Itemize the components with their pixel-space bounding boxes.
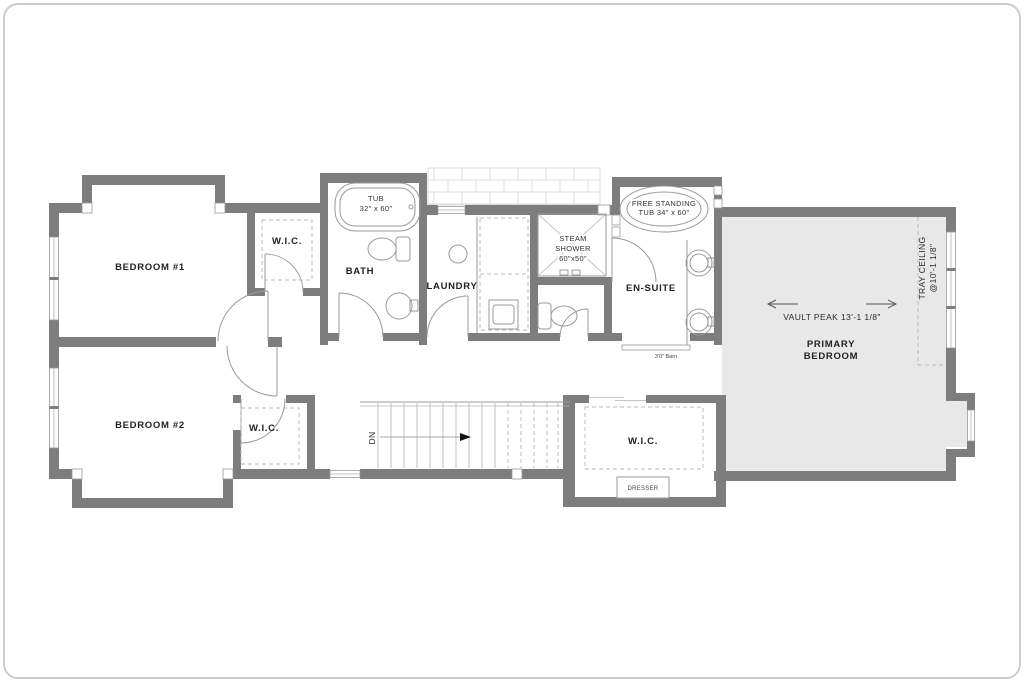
laundry-sink (489, 300, 518, 329)
window (438, 207, 465, 214)
window (72, 469, 82, 479)
label-fs-tub-line1: FREE STANDING (632, 199, 696, 208)
svg-text:DN: DN (367, 431, 377, 444)
window (947, 232, 956, 348)
label-tray-ceiling: TRAY CEILING @10'-1 1/8" (917, 236, 938, 299)
room-label-bath: BATH (346, 266, 374, 277)
room-label-wic-3: W.I.C. (628, 436, 658, 447)
window (50, 237, 59, 320)
toilet (368, 237, 410, 261)
room-label-bedroom-1: BEDROOM #1 (115, 262, 185, 273)
label-tray-line2: @10'-1 1/8" (928, 244, 938, 293)
window (512, 469, 522, 479)
stairs (360, 402, 570, 468)
window (612, 227, 620, 237)
sink (386, 293, 418, 319)
laundry-drain (449, 245, 467, 263)
label-tub-line2: 32" x 60" (360, 204, 393, 213)
label-tub-line1: TUB (368, 194, 384, 203)
floor-plan-page: BEDROOM #1 BEDROOM #2 W.I.C. W.I.C. W.I.… (0, 0, 1024, 682)
sliding-door-wic3 (589, 398, 646, 401)
stair-treads (378, 403, 558, 468)
door-laundry (427, 296, 468, 337)
barn-door (622, 345, 690, 350)
label-dresser: DRESSER (627, 486, 658, 492)
label-fs-tub-line2: TUB 34" x 60" (639, 208, 690, 217)
label-barn-door: 3'0" Barn (655, 354, 677, 360)
window (968, 410, 975, 441)
window (714, 199, 722, 208)
label-steam-line3: 60"x50" (559, 254, 587, 263)
room-label-laundry: LAUNDRY (427, 281, 478, 292)
window (612, 215, 620, 225)
toilet (538, 303, 577, 329)
window (330, 471, 360, 478)
window (223, 469, 233, 479)
laundry-counter (449, 217, 528, 333)
label-vault-peak: VAULT PEAK 13'-1 1/8" (783, 312, 881, 322)
room-label-wic-1: W.I.C. (272, 236, 302, 247)
room-label-ensuite: EN-SUITE (626, 283, 676, 294)
window (714, 186, 722, 195)
window (50, 368, 59, 448)
door-wic1 (265, 254, 303, 292)
door-bedroom2 (227, 346, 277, 396)
stair-direction-arrow (380, 433, 471, 441)
label-steam-line2: SHOWER (555, 244, 591, 253)
room-label-bedroom-2: BEDROOM #2 (115, 420, 185, 431)
door-bedroom1 (218, 291, 268, 341)
room-label-wic-2: W.I.C. (249, 423, 279, 434)
room-label-primary-line2: BEDROOM (804, 351, 859, 362)
floor-plan-drawing: BEDROOM #1 BEDROOM #2 W.I.C. W.I.C. W.I.… (0, 0, 1024, 682)
window (82, 203, 92, 213)
room-label-primary-line1: PRIMARY (807, 339, 855, 350)
door-ensuite (612, 238, 656, 282)
window (215, 203, 225, 213)
tile-deck-area (428, 168, 600, 205)
ensuite-vanity (686, 240, 714, 345)
label-steam-line1: STEAM (559, 234, 586, 243)
label-tray-line1: TRAY CEILING (917, 236, 927, 299)
door-wic2 (241, 399, 285, 443)
label-stairs-dn: DN (367, 431, 377, 444)
door-bath (339, 293, 383, 337)
